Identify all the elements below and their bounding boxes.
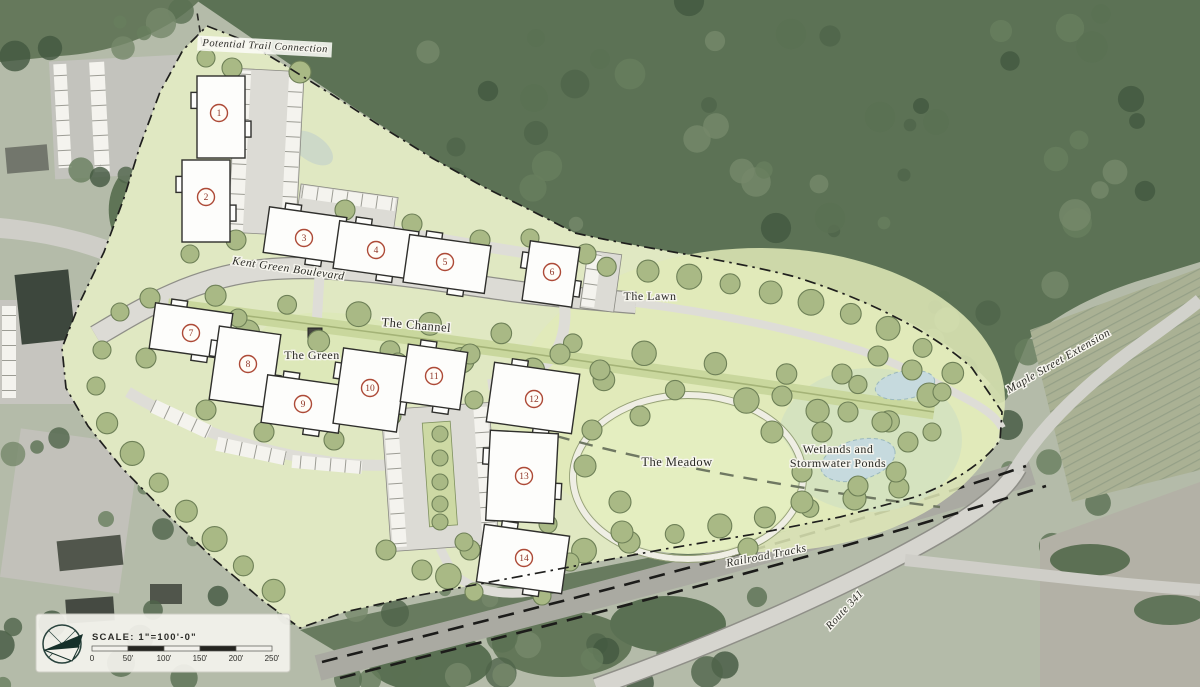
tree-icon: [590, 360, 610, 380]
tree-icon: [609, 491, 631, 513]
building-marker-10: 10: [362, 380, 379, 397]
tree-icon: [262, 579, 285, 602]
tree-icon: [630, 406, 650, 426]
tree-icon: [923, 423, 941, 441]
building-marker-7: 7: [183, 325, 200, 342]
tree-icon: [759, 281, 782, 304]
tree-icon: [868, 346, 888, 366]
tree-icon: [97, 413, 118, 434]
label-the-lawn: The Lawn: [624, 289, 677, 303]
tree-icon: [254, 422, 274, 442]
tree-icon: [798, 289, 824, 315]
svg-text:The Green: The Green: [284, 348, 339, 362]
building-marker-12: 12: [526, 391, 543, 408]
tree-icon: [832, 364, 852, 384]
scale-tick: 0: [90, 654, 95, 663]
svg-text:10: 10: [365, 384, 375, 394]
building-marker-11: 11: [426, 368, 443, 385]
svg-text:13: 13: [519, 472, 529, 482]
svg-text:2: 2: [204, 193, 209, 203]
tree-icon: [838, 402, 858, 422]
svg-text:11: 11: [429, 372, 438, 382]
tree-icon: [761, 421, 783, 443]
building-marker-14: 14: [516, 550, 533, 567]
tree-icon: [791, 491, 813, 513]
tree-icon: [465, 391, 483, 409]
tree-icon: [202, 527, 227, 552]
scale-tick: 200': [229, 654, 244, 663]
tree-icon: [412, 560, 432, 580]
tree-icon: [933, 383, 951, 401]
site-plan-map: Potential Trail ConnectionKent Green Bou…: [0, 0, 1200, 687]
tree-icon: [872, 412, 892, 432]
scale-bar-panel: SCALE: 1"=100'-0" 050'100'150'200'250': [36, 614, 290, 672]
scale-segments: [92, 646, 272, 651]
svg-text:6: 6: [550, 268, 555, 278]
tree-icon: [812, 422, 832, 442]
svg-text:12: 12: [529, 395, 539, 405]
tree-icon: [704, 352, 726, 374]
tree-icon: [886, 462, 906, 482]
tree-icon: [550, 344, 570, 364]
tree-icon: [432, 426, 448, 442]
building-marker-3: 3: [296, 230, 313, 247]
tree-icon: [346, 302, 371, 327]
svg-text:The Meadow: The Meadow: [641, 455, 712, 469]
tree-icon: [436, 564, 462, 590]
svg-text:7: 7: [189, 329, 194, 339]
label-the-green: The Green: [284, 348, 339, 362]
svg-text:1: 1: [217, 109, 222, 119]
tree-icon: [902, 360, 922, 380]
svg-text:5: 5: [443, 258, 448, 268]
scale-tick: 250': [265, 654, 280, 663]
tree-icon: [720, 274, 740, 294]
tree-icon: [87, 377, 105, 395]
scale-tick: 100': [157, 654, 172, 663]
tree-icon: [665, 380, 684, 399]
scale-tick: 50': [123, 654, 134, 663]
tree-icon: [597, 257, 616, 276]
tree-icon: [734, 388, 759, 413]
tree-icon: [376, 540, 396, 560]
tree-icon: [432, 450, 448, 466]
building-marker-13: 13: [516, 468, 533, 485]
building-marker-8: 8: [240, 356, 257, 373]
tree-icon: [574, 455, 596, 477]
tree-icon: [708, 514, 732, 538]
tree-icon: [848, 476, 868, 496]
tree-icon: [289, 61, 311, 83]
tree-icon: [632, 341, 656, 365]
svg-text:3: 3: [302, 234, 307, 244]
tree-icon: [913, 339, 932, 358]
scale-label: SCALE: 1"=100'-0": [92, 632, 197, 643]
building-marker-6: 6: [544, 264, 561, 281]
tree-icon: [278, 295, 297, 314]
tree-icon: [149, 473, 168, 492]
building-marker-5: 5: [437, 254, 454, 271]
tree-icon: [582, 420, 602, 440]
svg-text:8: 8: [246, 360, 251, 370]
tree-icon: [840, 303, 861, 324]
tree-icon: [432, 474, 448, 490]
building-marker-4: 4: [368, 242, 385, 259]
svg-text:The Lawn: The Lawn: [624, 289, 677, 303]
scale-tick: 150': [193, 654, 208, 663]
tree-icon: [677, 264, 702, 289]
tree-icon: [196, 400, 216, 420]
building-marker-2: 2: [198, 189, 215, 206]
tree-icon: [876, 316, 900, 340]
tree-icon: [806, 399, 829, 422]
tree-icon: [222, 58, 242, 78]
label-wetlands-and-stormwater-ponds: Wetlands andStormwater Ponds: [790, 442, 886, 470]
tree-icon: [120, 441, 144, 465]
svg-text:9: 9: [301, 400, 306, 410]
tree-icon: [136, 348, 156, 368]
tree-icon: [197, 49, 215, 67]
tree-icon: [93, 341, 111, 359]
tree-icon: [455, 533, 473, 551]
tree-icon: [205, 285, 226, 306]
label-the-meadow: The Meadow: [641, 455, 712, 469]
tree-icon: [175, 500, 197, 522]
building-marker-9: 9: [295, 396, 312, 413]
tree-icon: [772, 386, 792, 406]
svg-text:4: 4: [374, 246, 379, 256]
site-plan-canvas: Potential Trail ConnectionKent Green Bou…: [0, 0, 1200, 687]
tree-icon: [611, 521, 633, 543]
tree-icon: [432, 514, 448, 530]
tree-icon: [942, 362, 964, 384]
svg-text:Wetlands andStormwater Ponds: Wetlands andStormwater Ponds: [790, 442, 886, 470]
tree-icon: [665, 525, 684, 544]
tree-icon: [898, 432, 918, 452]
tree-icon: [432, 496, 448, 512]
tree-icon: [111, 303, 129, 321]
tree-icon: [776, 364, 796, 384]
building-marker-1: 1: [211, 105, 228, 122]
tree-icon: [754, 507, 775, 528]
tree-icon: [491, 323, 512, 344]
tree-icon: [637, 260, 659, 282]
tree-icon: [181, 245, 199, 263]
tree-icon: [233, 556, 253, 576]
svg-text:14: 14: [519, 554, 529, 564]
